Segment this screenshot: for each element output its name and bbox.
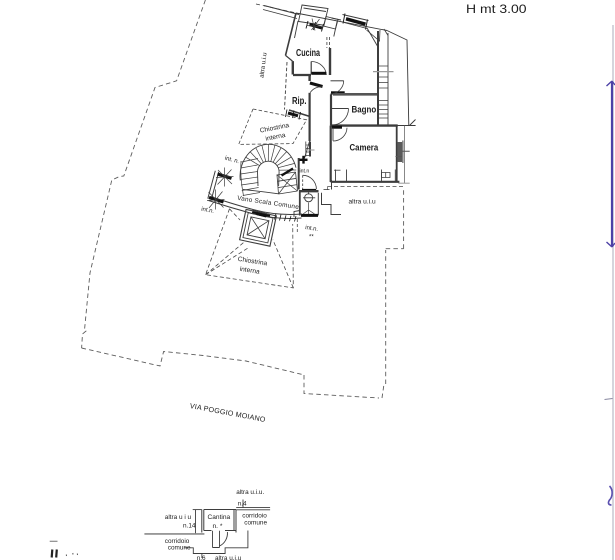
svg-text:corridoio: corridoio <box>242 513 267 520</box>
svg-text:n. *: n. * <box>213 523 223 530</box>
svg-text:int.n: int.n <box>300 169 310 175</box>
svg-text:Camera: Camera <box>350 143 379 154</box>
svg-text:Cucina: Cucina <box>296 48 320 59</box>
svg-text:n.4: n.4 <box>238 500 247 507</box>
svg-text:n.6: n.6 <box>197 555 206 560</box>
svg-text:altra u.i.u: altra u.i.u <box>349 199 376 206</box>
svg-text:altra u.i.u: altra u.i.u <box>215 555 242 560</box>
svg-text:Rip.: Rip. <box>292 96 307 107</box>
svg-text:**: ** <box>309 235 314 241</box>
svg-text:Bagno: Bagno <box>352 105 377 116</box>
svg-text:altra u.i.u.: altra u.i.u. <box>236 489 264 496</box>
svg-text:n.14: n.14 <box>183 523 196 530</box>
svg-text:comune: comune <box>244 520 267 527</box>
svg-text:comune: comune <box>168 545 191 552</box>
svg-text:Cantina: Cantina <box>208 514 231 521</box>
svg-text:H mt 3.00: H mt 3.00 <box>466 2 527 16</box>
svg-text:altra u i u: altra u i u <box>165 514 192 521</box>
